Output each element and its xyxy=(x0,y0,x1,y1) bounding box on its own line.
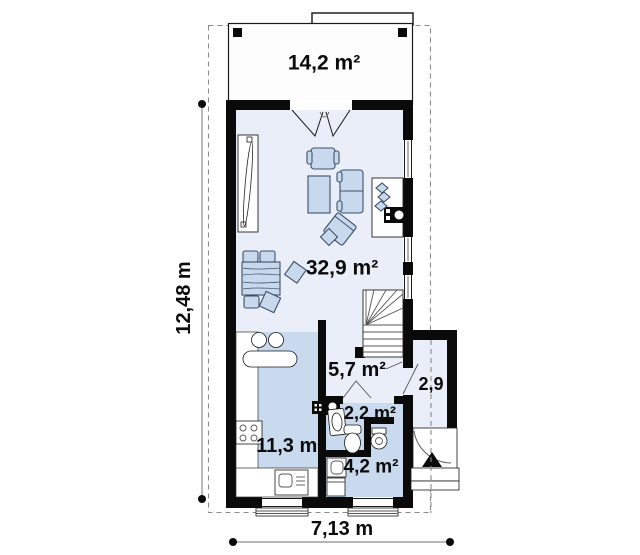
window xyxy=(256,497,308,516)
room-area-label-living: 32,9 m² xyxy=(306,258,378,279)
window xyxy=(403,140,413,178)
chair xyxy=(260,251,275,262)
oven-appliance xyxy=(275,470,308,495)
sink-bowl xyxy=(269,333,284,348)
sink-bowl xyxy=(252,333,267,348)
room-area-label-hall: 5,7 m² xyxy=(328,360,386,380)
coffee-table xyxy=(308,176,330,213)
dining-table xyxy=(242,262,280,295)
armchair xyxy=(307,148,339,169)
dimension-label-width: 7,13 m xyxy=(311,519,373,539)
washing-machine xyxy=(327,478,345,496)
tall-cabinet xyxy=(238,135,258,232)
stairs xyxy=(363,290,403,357)
chair xyxy=(243,251,258,262)
kitchen-island xyxy=(243,351,297,367)
room-area-label-wc: 2,2 m² xyxy=(344,404,396,422)
toilet xyxy=(371,428,387,449)
toilet xyxy=(344,425,361,453)
chair xyxy=(244,296,259,308)
room-area-label-porch: 2,9 xyxy=(418,375,443,393)
window xyxy=(403,275,413,299)
room-area-label-terrace: 14,2 m² xyxy=(288,53,360,74)
window xyxy=(348,497,398,516)
sofa xyxy=(337,170,363,213)
room-area-label-kitchen: 11,3 m² xyxy=(256,436,324,456)
terrace-post xyxy=(233,28,242,37)
dimension-label-height: 12,48 m xyxy=(174,261,194,334)
room-area-label-bathroom: 4,2 m² xyxy=(344,458,399,477)
fireplace xyxy=(372,178,407,237)
window xyxy=(403,237,413,262)
floor-plan-canvas: 14,2 m² 32,9 m² 11,3 m² 5,7 m² 2,2 m² 4,… xyxy=(0,0,640,555)
entry-step xyxy=(411,481,459,490)
entry-step xyxy=(411,468,459,481)
vertical-dimension-line xyxy=(198,100,206,503)
terrace-post xyxy=(398,28,407,37)
